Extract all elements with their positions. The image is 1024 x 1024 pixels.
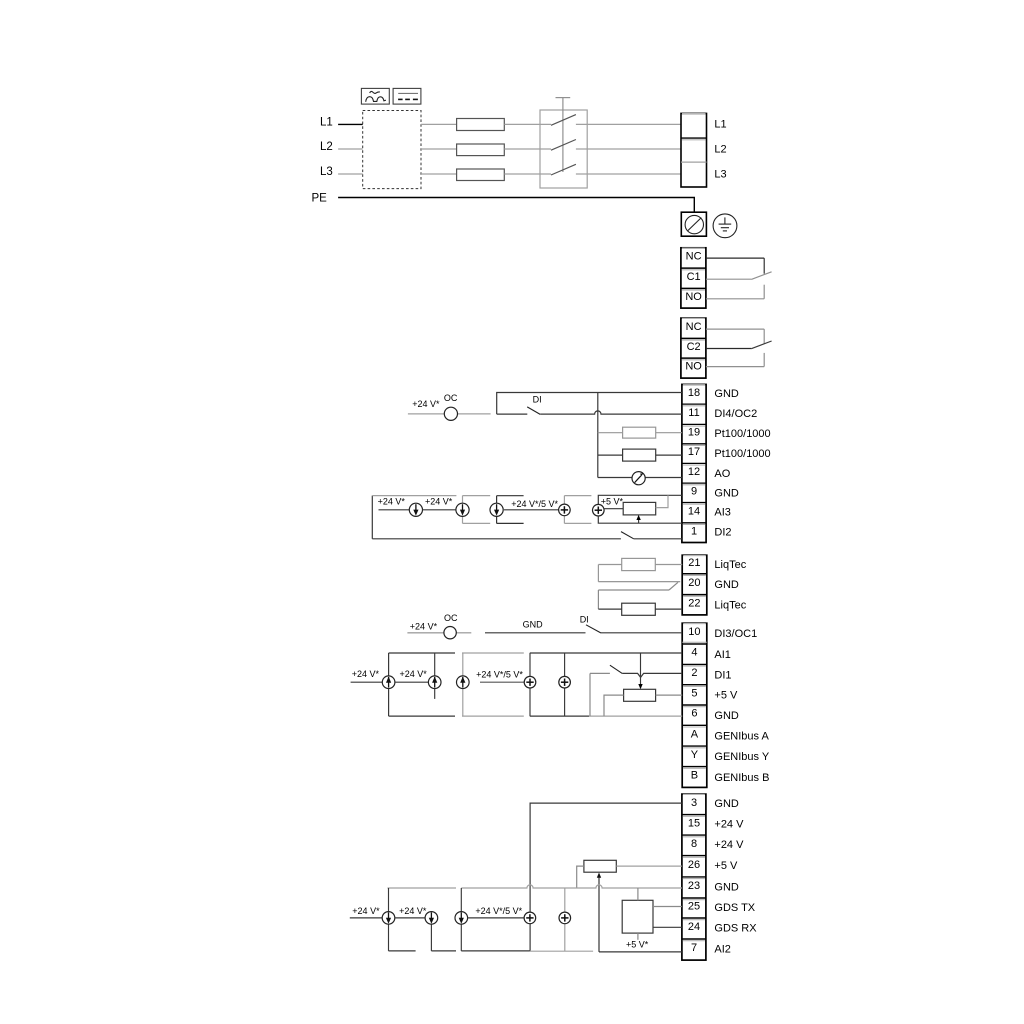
svg-text:NC: NC bbox=[686, 321, 702, 333]
svg-text:GENIbus Y: GENIbus Y bbox=[714, 751, 769, 763]
svg-text:+24 V*/5 V*: +24 V*/5 V* bbox=[511, 499, 558, 509]
svg-text:B: B bbox=[691, 770, 698, 782]
svg-text:C1: C1 bbox=[687, 271, 701, 283]
svg-text:A: A bbox=[691, 728, 699, 740]
svg-text:GND: GND bbox=[714, 881, 739, 893]
svg-text:17: 17 bbox=[688, 446, 700, 458]
svg-text:Pt100/1000: Pt100/1000 bbox=[714, 448, 770, 460]
svg-text:24: 24 bbox=[688, 921, 700, 933]
svg-text:GENIbus B: GENIbus B bbox=[714, 772, 769, 784]
svg-text:DI: DI bbox=[533, 394, 542, 404]
svg-text:+24 V: +24 V bbox=[714, 839, 744, 851]
svg-text:C2: C2 bbox=[687, 341, 701, 353]
svg-text:L1: L1 bbox=[714, 118, 726, 130]
svg-text:19: 19 bbox=[688, 427, 700, 439]
svg-text:DI2: DI2 bbox=[714, 527, 731, 539]
svg-text:GND: GND bbox=[523, 620, 544, 630]
svg-text:+24 V*: +24 V* bbox=[410, 621, 438, 631]
svg-text:26: 26 bbox=[688, 859, 700, 871]
svg-text:10: 10 bbox=[688, 626, 700, 638]
svg-text:+24 V*: +24 V* bbox=[399, 906, 427, 916]
svg-text:L3: L3 bbox=[714, 168, 726, 180]
svg-text:OC: OC bbox=[444, 393, 458, 403]
svg-text:GND: GND bbox=[714, 798, 739, 810]
svg-text:OC: OC bbox=[444, 613, 458, 623]
svg-text:+5 V*: +5 V* bbox=[626, 939, 649, 949]
svg-text:9: 9 bbox=[691, 485, 697, 497]
svg-text:22: 22 bbox=[688, 597, 700, 609]
svg-text:LiqTec: LiqTec bbox=[714, 600, 746, 612]
svg-text:+5 V: +5 V bbox=[714, 690, 738, 702]
svg-text:L3: L3 bbox=[320, 166, 333, 178]
svg-text:DI3/OC1: DI3/OC1 bbox=[714, 628, 757, 640]
svg-text:+24 V*: +24 V* bbox=[425, 497, 453, 507]
svg-text:L1: L1 bbox=[320, 117, 333, 129]
svg-text:GND: GND bbox=[714, 710, 739, 722]
svg-text:GDS TX: GDS TX bbox=[714, 902, 755, 914]
svg-text:7: 7 bbox=[691, 942, 697, 954]
svg-text:NO: NO bbox=[685, 291, 702, 303]
svg-text:NO: NO bbox=[685, 361, 702, 373]
svg-text:AI2: AI2 bbox=[714, 943, 731, 955]
svg-text:+24 V*/5 V*: +24 V*/5 V* bbox=[475, 906, 522, 916]
svg-text:GND: GND bbox=[714, 388, 739, 400]
svg-text:PE: PE bbox=[312, 193, 328, 205]
svg-text:18: 18 bbox=[688, 387, 700, 399]
svg-text:23: 23 bbox=[688, 880, 700, 892]
svg-text:20: 20 bbox=[688, 577, 700, 589]
svg-text:+24 V*: +24 V* bbox=[352, 669, 380, 679]
svg-text:L2: L2 bbox=[320, 141, 333, 153]
svg-text:1: 1 bbox=[691, 525, 697, 537]
svg-text:DI: DI bbox=[580, 615, 589, 625]
svg-text:GDS RX: GDS RX bbox=[714, 922, 757, 934]
svg-text:8: 8 bbox=[691, 838, 697, 850]
svg-text:11: 11 bbox=[688, 407, 699, 419]
svg-text:5: 5 bbox=[691, 687, 697, 699]
svg-text:LiqTec: LiqTec bbox=[714, 559, 746, 571]
svg-text:2: 2 bbox=[691, 667, 697, 679]
svg-text:GND: GND bbox=[714, 488, 739, 500]
svg-text:DI1: DI1 bbox=[714, 669, 731, 681]
svg-text:DI4/OC2: DI4/OC2 bbox=[714, 408, 757, 420]
svg-text:+24 V*: +24 V* bbox=[352, 906, 380, 916]
svg-text:12: 12 bbox=[688, 466, 700, 478]
svg-text:+24 V*: +24 V* bbox=[378, 497, 406, 507]
svg-text:14: 14 bbox=[688, 505, 700, 517]
svg-text:Pt100/1000: Pt100/1000 bbox=[714, 428, 770, 440]
svg-text:+24 V*/5 V*: +24 V*/5 V* bbox=[476, 670, 523, 680]
svg-text:AI1: AI1 bbox=[714, 649, 731, 661]
svg-text:25: 25 bbox=[688, 901, 700, 913]
svg-text:15: 15 bbox=[688, 818, 700, 830]
svg-text:Y: Y bbox=[691, 749, 699, 761]
svg-text:GND: GND bbox=[714, 579, 739, 591]
svg-text:GENIbus A: GENIbus A bbox=[714, 731, 769, 743]
svg-text:6: 6 bbox=[691, 708, 697, 720]
svg-text:3: 3 bbox=[691, 797, 697, 809]
svg-text:AI3: AI3 bbox=[714, 507, 731, 519]
svg-text:21: 21 bbox=[688, 557, 700, 569]
svg-text:+24 V*: +24 V* bbox=[412, 399, 440, 409]
svg-text:+24 V: +24 V bbox=[714, 819, 744, 831]
svg-text:+5 V*: +5 V* bbox=[601, 497, 624, 507]
svg-text:4: 4 bbox=[691, 647, 697, 659]
svg-text:AO: AO bbox=[714, 468, 730, 480]
svg-text:NC: NC bbox=[686, 251, 702, 263]
svg-text:L2: L2 bbox=[714, 143, 726, 155]
svg-text:+24 V*: +24 V* bbox=[400, 669, 428, 679]
svg-text:+5 V: +5 V bbox=[714, 860, 738, 872]
